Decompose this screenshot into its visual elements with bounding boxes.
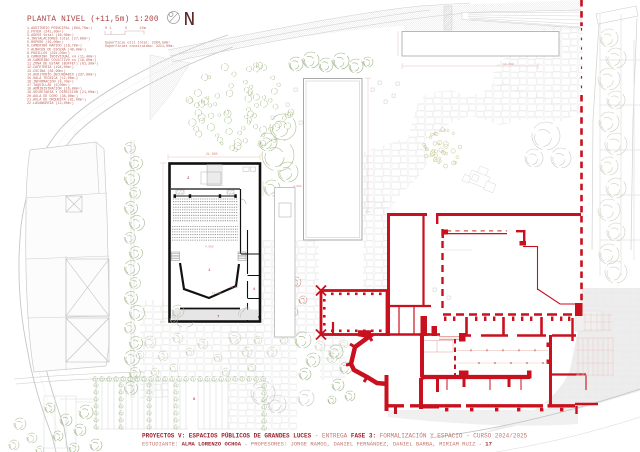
svg-text:14.000: 14.000 [503,63,514,66]
svg-text:15.6m: 15.6m [230,286,238,289]
svg-text:5: 5 [125,27,127,31]
svg-text:10m: 10m [140,27,146,31]
svg-text:0 1: 0 1 [105,27,111,31]
svg-text:4: 4 [253,288,255,292]
svg-text:4.000: 4.000 [205,246,214,249]
svg-text:22.LAVANDERÍA (13,00m²): 22.LAVANDERÍA (13,00m²) [27,101,74,106]
svg-text:21.000: 21.000 [206,152,218,156]
svg-text:PROYECTOS V: ESPACIOS PÚBLICOS: PROYECTOS V: ESPACIOS PÚBLICOS DE GRANDE… [142,433,528,440]
svg-text:17.15m: 17.15m [212,292,222,295]
svg-text:ESTUDIANTE: ALMA LORENZO OCHOA: ESTUDIANTE: ALMA LORENZO OCHOA - PROFESO… [142,441,492,448]
svg-text:N: N [184,9,196,31]
svg-text:PLANTA NIVEL (+11,5m) 1:200: PLANTA NIVEL (+11,5m) 1:200 [27,16,159,24]
svg-text:Superficies construidas: 3211,: Superficies construidas: 3211,00m² [105,44,174,49]
